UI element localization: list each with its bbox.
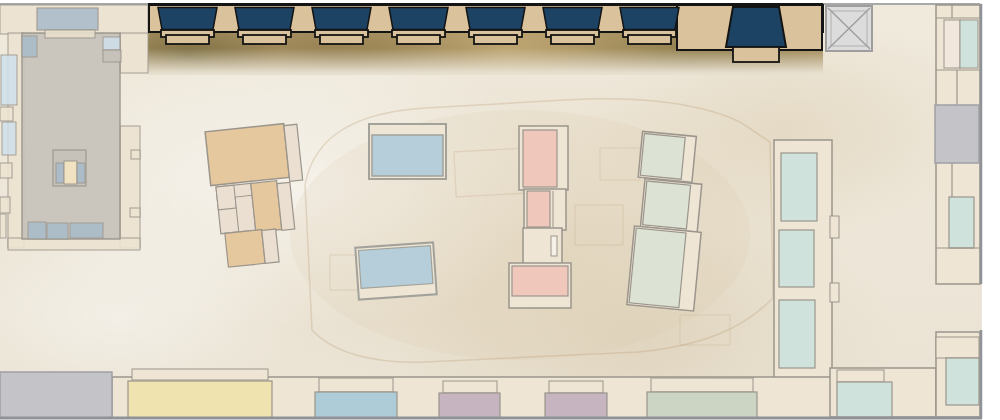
south-yellow-porch [132,369,268,380]
tan-house-mid-cell-a [216,185,236,210]
court-shrine-center [64,161,77,184]
tan-house-main [205,124,289,186]
west-annex-blue-2 [2,122,16,155]
court-south-cell-1 [28,222,46,239]
court-cell-ne [103,37,120,50]
east-stoa-room-2 [779,230,814,287]
courtyard-floor [22,33,120,239]
pink-row-room-1 [523,130,557,187]
south-teal-porch [837,370,884,382]
east-range-south-teal [946,358,979,405]
south-mauve-room-a [439,393,500,418]
court-south-cell-2 [47,223,68,239]
east-stoa-room-3 [779,300,815,368]
east-range-cell-beige [944,20,960,68]
great-stall-base [733,47,779,62]
west-annex-blue-1 [1,55,17,105]
site-plan-svg [0,0,1000,420]
stall-6-awning [543,8,602,30]
court-right-wall-upper [120,33,148,73]
court-north-hall [37,8,98,30]
stall-1-podium-inner [166,35,209,44]
green-row-room-1 [640,134,685,180]
stall-2-awning [235,8,294,30]
south-mauve-room-b [545,393,607,418]
south-blue-room [315,392,397,418]
court-shrine-left [56,163,64,183]
south-mauve-porch-b [549,381,603,393]
stall-1-awning [158,8,217,30]
stall-7-podium-inner [628,35,671,44]
south-blue-porch [319,378,393,392]
court-cell-ne2 [103,50,121,62]
tan-house-south [225,229,265,267]
west-annex-cell-2 [0,163,12,178]
court-east-tab-1 [131,150,140,159]
south-mauve-porch-a [443,381,497,393]
great-stall-awning [726,7,786,47]
east-range-south-porch [936,337,979,358]
south-green-porch [651,378,753,392]
east-range-teal-room [949,197,974,248]
stall-3-podium-inner [320,35,363,44]
pink-row-room-4 [512,266,568,296]
court-cell-nw [22,36,37,57]
site-plan [0,0,1000,420]
south-teal-room [837,382,892,417]
south-green-room [647,392,757,418]
green-row-room-3 [629,228,686,307]
court-right-wall-lower [120,126,140,248]
pink-row-room-2 [527,191,550,227]
court-south-cell-3 [70,223,103,238]
tan-house-south-sliver [262,229,279,263]
blue-hall-north-pool [372,135,443,176]
east-stoa-tab-1 [830,216,839,238]
stall-3-awning [312,8,371,30]
blue-hall-south-pool [358,246,432,289]
stall-6-podium-inner [551,35,594,44]
stall-5-podium-inner [474,35,517,44]
court-north-step [45,30,95,38]
east-range-cell-teal [960,20,978,68]
east-range-gray-block [935,105,979,163]
pink-row-door-slot [551,236,557,256]
court-bottom-band [8,238,140,250]
west-annex-cell-4 [0,214,6,238]
west-annex-cell-1 [0,107,13,121]
east-stoa-tab-2 [830,283,839,302]
stall-4-podium-inner [397,35,440,44]
south-gray-block [0,372,112,418]
green-row-room-2 [643,181,691,229]
stall-2-podium-inner [243,35,286,44]
south-yellow-room [128,381,272,418]
east-stoa-room-1 [781,153,817,221]
west-annex-cell-3 [0,197,10,213]
stall-5-awning [466,8,525,30]
court-east-tab-2 [130,208,140,217]
stall-7-awning [620,8,679,30]
stall-4-awning [389,8,448,30]
court-shrine-right [77,163,85,183]
